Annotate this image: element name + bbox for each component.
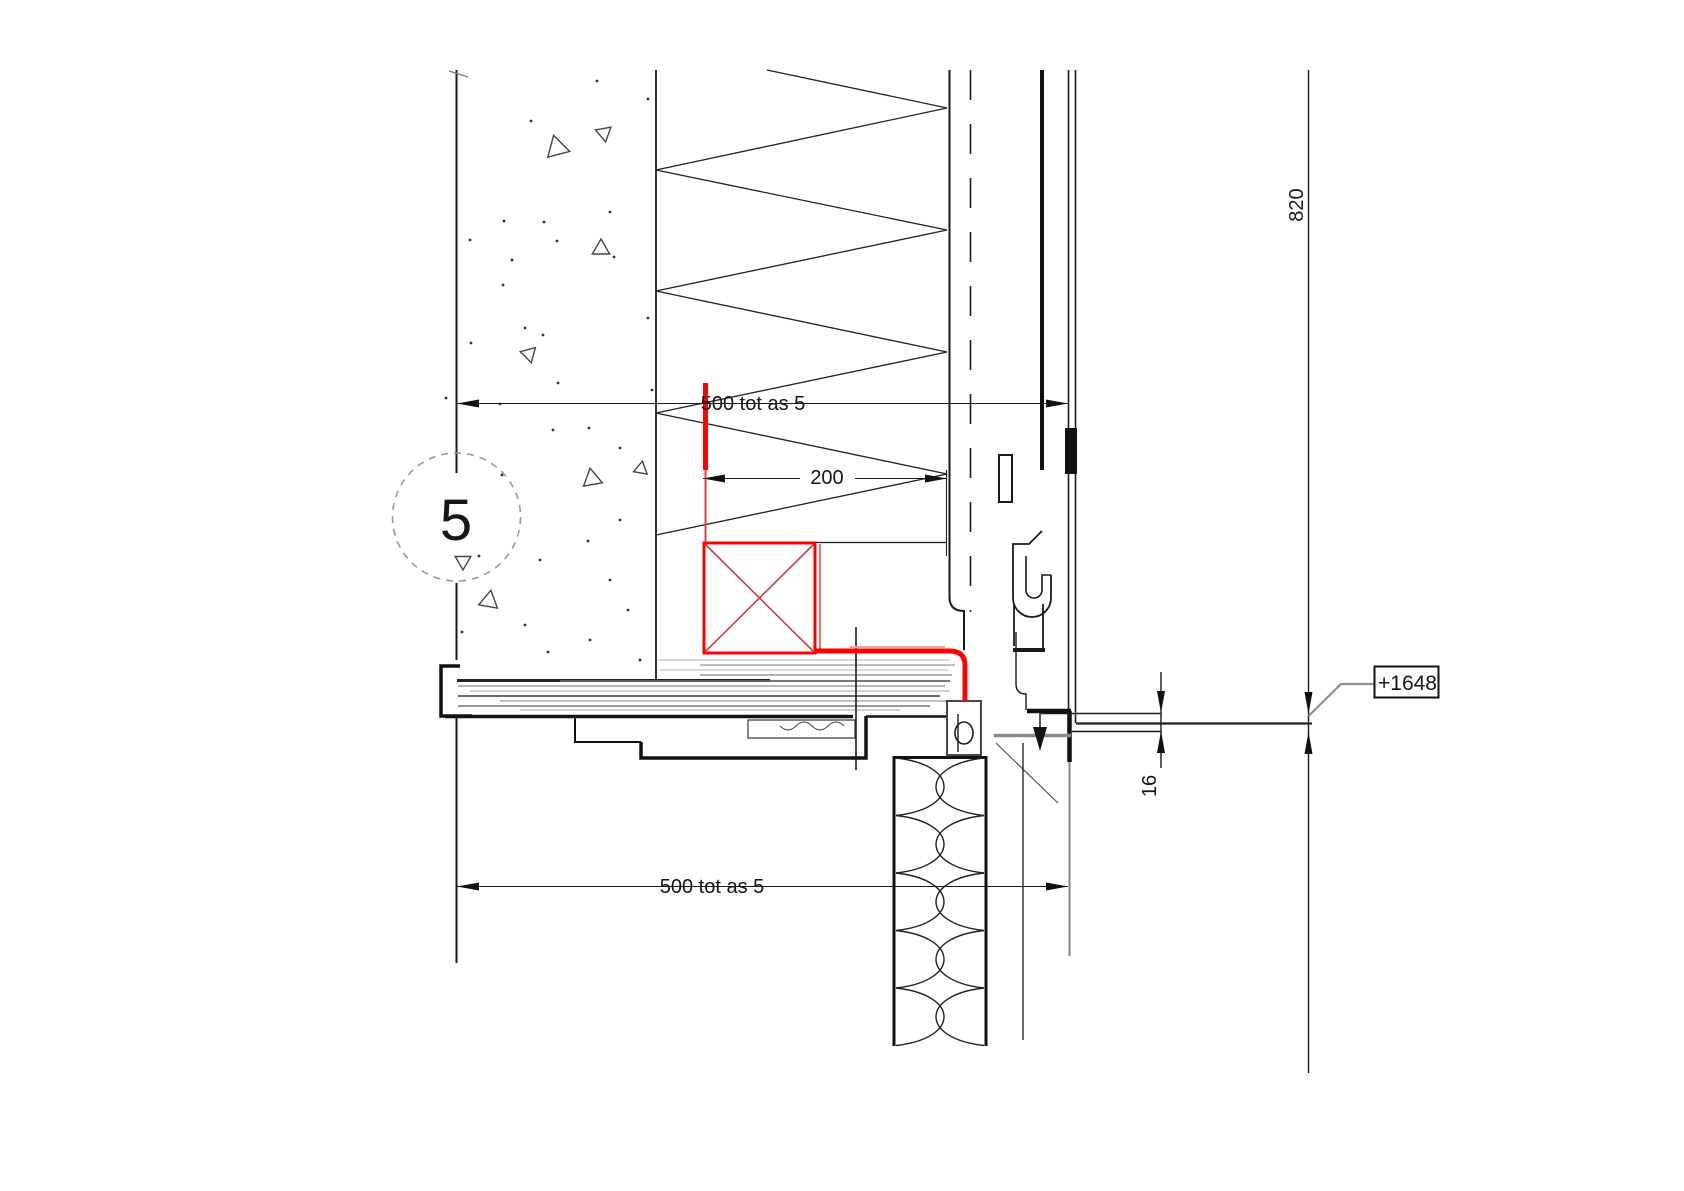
wall-lines [815, 70, 1077, 723]
stipple-triangle [584, 468, 603, 486]
stipple-dot [470, 342, 473, 345]
dim-820: 820 [1286, 70, 1313, 1073]
stipple-dot [524, 327, 527, 330]
batt-hatch-loop [936, 988, 984, 1046]
red-waterproofing [815, 651, 965, 701]
stipple-dot [619, 519, 622, 522]
insulation-batt [893, 743, 1023, 1046]
cad-drawing-canvas: 5 500 tot as 5 200 500 tot as 5 [0, 0, 1684, 1191]
dim-820-label: 820 [1286, 188, 1308, 221]
sill-end-profile [441, 666, 472, 716]
stipple-dot [613, 256, 616, 259]
stipple-dot [542, 334, 545, 337]
stipple-dot [469, 239, 472, 242]
stipple-dot [589, 639, 592, 642]
cavity-line [950, 70, 965, 650]
arrow-up [1305, 732, 1313, 754]
stipple-dot [530, 120, 533, 123]
stipple-triangle [520, 348, 535, 363]
stipple-dot [609, 211, 612, 214]
stipple-dot [647, 98, 650, 101]
window-frame [994, 455, 1312, 956]
level-marker: +1648 [1309, 667, 1439, 717]
stipple-dot [547, 651, 550, 654]
arrow-up [1157, 731, 1165, 753]
stipple-dot [587, 540, 590, 543]
sill-grain-lines [458, 660, 955, 710]
stipple-dot [539, 559, 542, 562]
batt-hatch-pattern [896, 758, 984, 1046]
arrow-down [1305, 692, 1313, 714]
frame-hook-inner [1026, 556, 1051, 598]
stipple-dot [502, 284, 505, 287]
dimensions: 500 tot as 5 200 500 tot as 5 820 [457, 70, 1313, 1073]
stipple-dot [557, 382, 560, 385]
concrete-wall [445, 70, 770, 681]
insulation-zigzag [656, 70, 947, 535]
dim-bottom-500: 500 tot as 5 [457, 876, 1068, 898]
batt-hatch-loop [896, 931, 944, 989]
batt-hatch-loop [896, 758, 944, 816]
frame-hook-outer [1013, 531, 1051, 617]
batt-hatch-loop [936, 931, 984, 989]
stipple-triangle [634, 461, 648, 474]
stipple-triangle [596, 127, 611, 142]
dim-top-500: 500 tot as 5 [457, 393, 1068, 415]
stipple-dot [524, 624, 527, 627]
sealant-squiggle [780, 722, 844, 730]
fastener-plate [999, 455, 1012, 502]
stipple-dot [588, 427, 591, 430]
stipple-dot [651, 389, 654, 392]
detail-drawing-svg: 5 500 tot as 5 200 500 tot as 5 [0, 0, 1684, 1191]
batt-hatch-loop [896, 873, 944, 931]
stipple-dot [647, 317, 650, 320]
level-tag-label: +1648 [1378, 672, 1437, 695]
concrete-stipple-dots [445, 80, 654, 662]
batt-hatch-loop [936, 816, 984, 874]
dim-200-label: 200 [810, 467, 843, 489]
arrow-right [1046, 883, 1068, 891]
dim-16: 16 [1139, 672, 1165, 797]
arrow-left [457, 883, 479, 891]
stipple-dot [639, 659, 642, 662]
stipple-triangle [592, 239, 609, 254]
sub-frame-tray [641, 716, 866, 758]
diagonal-leader [996, 743, 1058, 803]
stipple-dot [609, 579, 612, 582]
clip-housing [947, 701, 981, 755]
arrow-right [1046, 400, 1068, 408]
stipple-triangle [455, 557, 471, 571]
stipple-triangle [548, 135, 570, 157]
concrete-stipple-triangles [455, 127, 647, 608]
level-leader [1309, 684, 1375, 716]
stipple-dot [445, 397, 448, 400]
top-break-tick [449, 71, 468, 77]
stipple-dot [543, 221, 546, 224]
batt-hatch-loop [936, 873, 984, 931]
batt-hatch-loop [896, 816, 944, 874]
arrow-left [457, 400, 479, 408]
sill-board [441, 627, 955, 770]
line-break-bar [1065, 428, 1077, 474]
batt-hatch-loop [936, 758, 984, 816]
jamb-lower-line [1016, 632, 1026, 710]
stipple-dot [556, 240, 559, 243]
stipple-dot [511, 259, 514, 262]
stipple-dot [627, 609, 630, 612]
stipple-dot [619, 447, 622, 450]
stipple-triangle [479, 590, 498, 608]
grid-bubble-number: 5 [440, 488, 472, 553]
batt-hatch-loop [896, 988, 944, 1046]
stipple-dot [478, 555, 481, 558]
dim-16-label: 16 [1139, 775, 1161, 797]
stipple-dot [596, 80, 599, 83]
stipple-dot [461, 631, 464, 634]
stipple-dot [503, 220, 506, 223]
arrow-down [1157, 691, 1165, 713]
stipple-dot [552, 429, 555, 432]
pointer-arrow-down [1033, 727, 1047, 751]
